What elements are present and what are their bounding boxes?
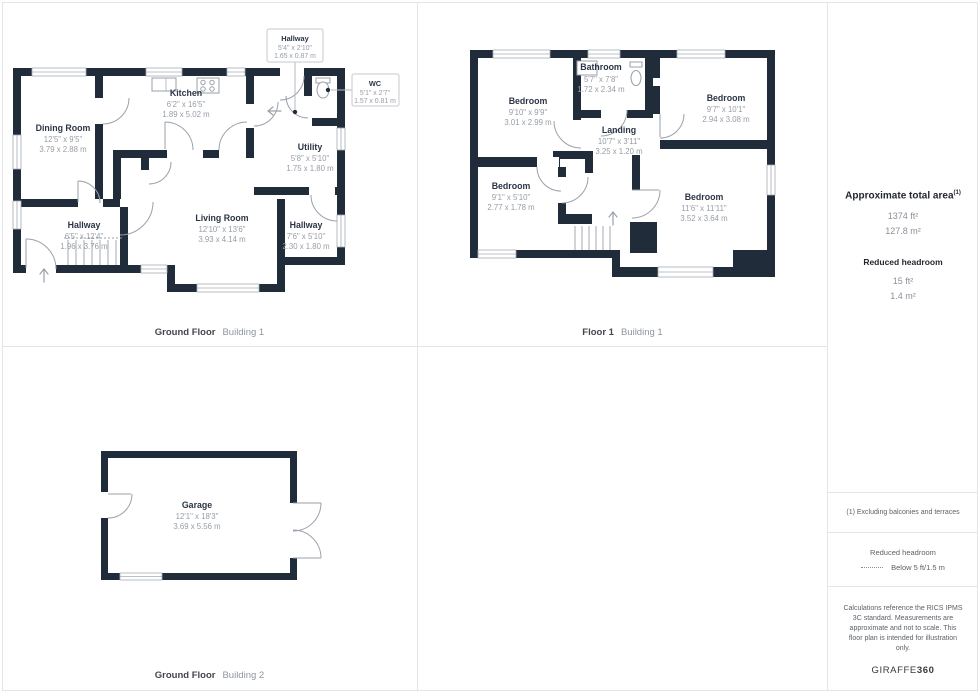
caption-f1-floor: Floor 1 — [582, 327, 614, 338]
room-label-bed-l-m: 2.77 x 1.78 m — [487, 203, 534, 212]
room-label-hallway2-name: Hallway — [290, 220, 323, 230]
room-label-kitchen-m: 1.89 x 5.02 m — [162, 110, 209, 119]
room-label-landing-ft: 10'7" x 3'11" — [598, 137, 640, 146]
legend-section: Reduced headroom Below 5 ft/1.5 m — [828, 532, 978, 586]
room-label-bed-br-name: Bedroom — [685, 192, 724, 202]
room-label-bed-tl-m: 3.01 x 2.99 m — [504, 118, 551, 127]
room-label-utility-name: Utility — [298, 142, 323, 152]
giraffe360-logo: GIRAFFE360 — [871, 665, 934, 676]
room-label-landing-m: 3.25 x 1.20 m — [595, 147, 642, 156]
room-label-hallway-name: Hallway — [68, 220, 101, 230]
room-label-hallway2-ft: 7'6" x 5'10" — [287, 232, 326, 241]
floorplan-ground-floor-building1: Dining Room 12'5" x 9'5" 3.79 x 2.88 m K… — [2, 2, 417, 346]
caption-gf1-floor: Ground Floor — [155, 327, 216, 338]
gf2-windows — [120, 573, 162, 580]
legend-row: Below 5 ft/1.5 m — [861, 563, 945, 572]
gf2-room-labels: Garage 12'1" x 18'3" 3.69 x 5.56 m — [173, 500, 220, 531]
room-label-bed-l-ft: 9'1" x 5'10" — [492, 193, 531, 202]
caption-gf2-building: Building 2 — [222, 670, 264, 681]
room-label-bed-br-m: 3.52 x 3.64 m — [680, 214, 727, 223]
total-area-section: Approximate total area(1) 1374 ft² 127.8… — [828, 2, 978, 492]
footnote-section: (1) Excluding balconies and terraces — [828, 492, 978, 532]
caption-gf2-floor: Ground Floor — [155, 670, 216, 681]
room-label-dining-name: Dining Room — [36, 123, 91, 133]
caption-ground-floor-b2: Ground Floor Building 2 — [2, 670, 417, 681]
room-label-living-name: Living Room — [195, 213, 248, 223]
room-label-bed-tr-name: Bedroom — [707, 93, 746, 103]
room-label-utility-m: 1.75 x 1.80 m — [286, 164, 333, 173]
caption-f1-building: Building 1 — [621, 327, 663, 338]
room-label-dining-ft: 12'5" x 9'5" — [44, 135, 83, 144]
room-label-hallway-m: 1.96 x 3.76 m — [60, 242, 107, 251]
caption-ground-floor-b1: Ground Floor Building 1 — [2, 327, 417, 338]
room-label-landing-name: Landing — [602, 125, 636, 135]
callout-hallway-ft: 5'4" x 2'10" — [278, 45, 313, 52]
callout-wc-name: WC — [369, 79, 382, 88]
room-label-bed-tl-name: Bedroom — [509, 96, 548, 106]
floorplan-floor1-building1: Bedroom 9'10" x 9'9" 3.01 x 2.99 m Bathr… — [418, 2, 827, 346]
room-label-bed-br-ft: 11'6" x 11'11" — [681, 204, 727, 213]
caption-gf1-building: Building 1 — [222, 327, 264, 338]
reduced-headroom-m: 1.4 m² — [890, 289, 916, 304]
room-label-garage-ft: 12'1" x 18'3" — [176, 512, 219, 521]
room-label-kitchen-ft: 6'2" x 16'5" — [167, 100, 206, 109]
reduced-headroom-title: Reduced headroom — [863, 257, 942, 267]
room-label-dining-m: 3.79 x 2.88 m — [39, 145, 86, 154]
callout-hallway-name: Hallway — [281, 34, 309, 43]
summary-sidebar: Approximate total area(1) 1374 ft² 127.8… — [828, 2, 978, 691]
room-label-living-ft: 12'10" x 13'6" — [198, 225, 245, 234]
room-label-garage-name: Garage — [182, 500, 212, 510]
logo-bold-part: 360 — [917, 665, 935, 676]
gf1-room-labels: Dining Room 12'5" x 9'5" 3.79 x 2.88 m K… — [36, 88, 334, 251]
callout-wc-ft: 5'1" x 2'7" — [360, 90, 391, 97]
room-label-hallway2-m: 2.30 x 1.80 m — [282, 242, 329, 251]
room-label-living-m: 3.93 x 4.14 m — [198, 235, 245, 244]
room-label-garage-m: 3.69 x 5.56 m — [173, 522, 220, 531]
logo-normal-part: GIRAFFE — [871, 665, 916, 676]
legend-title: Reduced headroom — [870, 548, 936, 557]
callout-wc-m: 1.57 x 0.81 m — [354, 98, 396, 105]
room-label-kitchen-name: Kitchen — [170, 88, 202, 98]
room-label-bed-l-name: Bedroom — [492, 181, 531, 191]
f1-stairs — [575, 226, 610, 250]
footnote-text: (1) Excluding balconies and terraces — [846, 509, 959, 516]
total-area-m: 127.8 m² — [885, 224, 921, 239]
room-label-bed-tr-m: 2.94 x 3.08 m — [702, 115, 749, 124]
total-area-ft: 1374 ft² — [888, 209, 919, 224]
room-label-bathroom-name: Bathroom — [580, 62, 622, 72]
room-label-bed-tl-ft: 9'10" x 9'9" — [509, 108, 548, 117]
caption-floor1-b1: Floor 1 Building 1 — [418, 327, 827, 338]
room-label-utility-ft: 5'8" x 5'10" — [291, 154, 330, 163]
dotted-line-icon — [861, 567, 883, 568]
disclaimer-section: Calculations reference the RICS IPMS 3C … — [828, 586, 978, 691]
f1-stairs-arrow — [609, 212, 617, 225]
room-label-hallway-ft: 6'5" x 12'4" — [65, 232, 104, 241]
reduced-headroom-ft: 15 ft² — [893, 274, 914, 289]
total-area-title: Approximate total area(1) — [845, 190, 961, 201]
disclaimer-text: Calculations reference the RICS IPMS 3C … — [842, 604, 964, 654]
room-label-bathroom-ft: 5'7" x 7'8" — [584, 75, 618, 84]
total-area-footnote-marker: (1) — [954, 190, 961, 196]
gf1-callout-wc: WC 5'1" x 2'7" 1.57 x 0.81 m — [326, 74, 399, 106]
callout-hallway-m: 1.65 x 0.87 m — [274, 53, 316, 60]
room-label-bathroom-m: 1.72 x 2.34 m — [577, 85, 624, 94]
floorplan-ground-floor-building2: Garage 12'1" x 18'3" 3.69 x 5.56 m — [2, 347, 417, 691]
room-label-bed-tr-ft: 9'7" x 10'1" — [707, 105, 746, 114]
total-area-title-text: Approximate total area — [845, 191, 953, 202]
legend-value: Below 5 ft/1.5 m — [891, 563, 945, 572]
